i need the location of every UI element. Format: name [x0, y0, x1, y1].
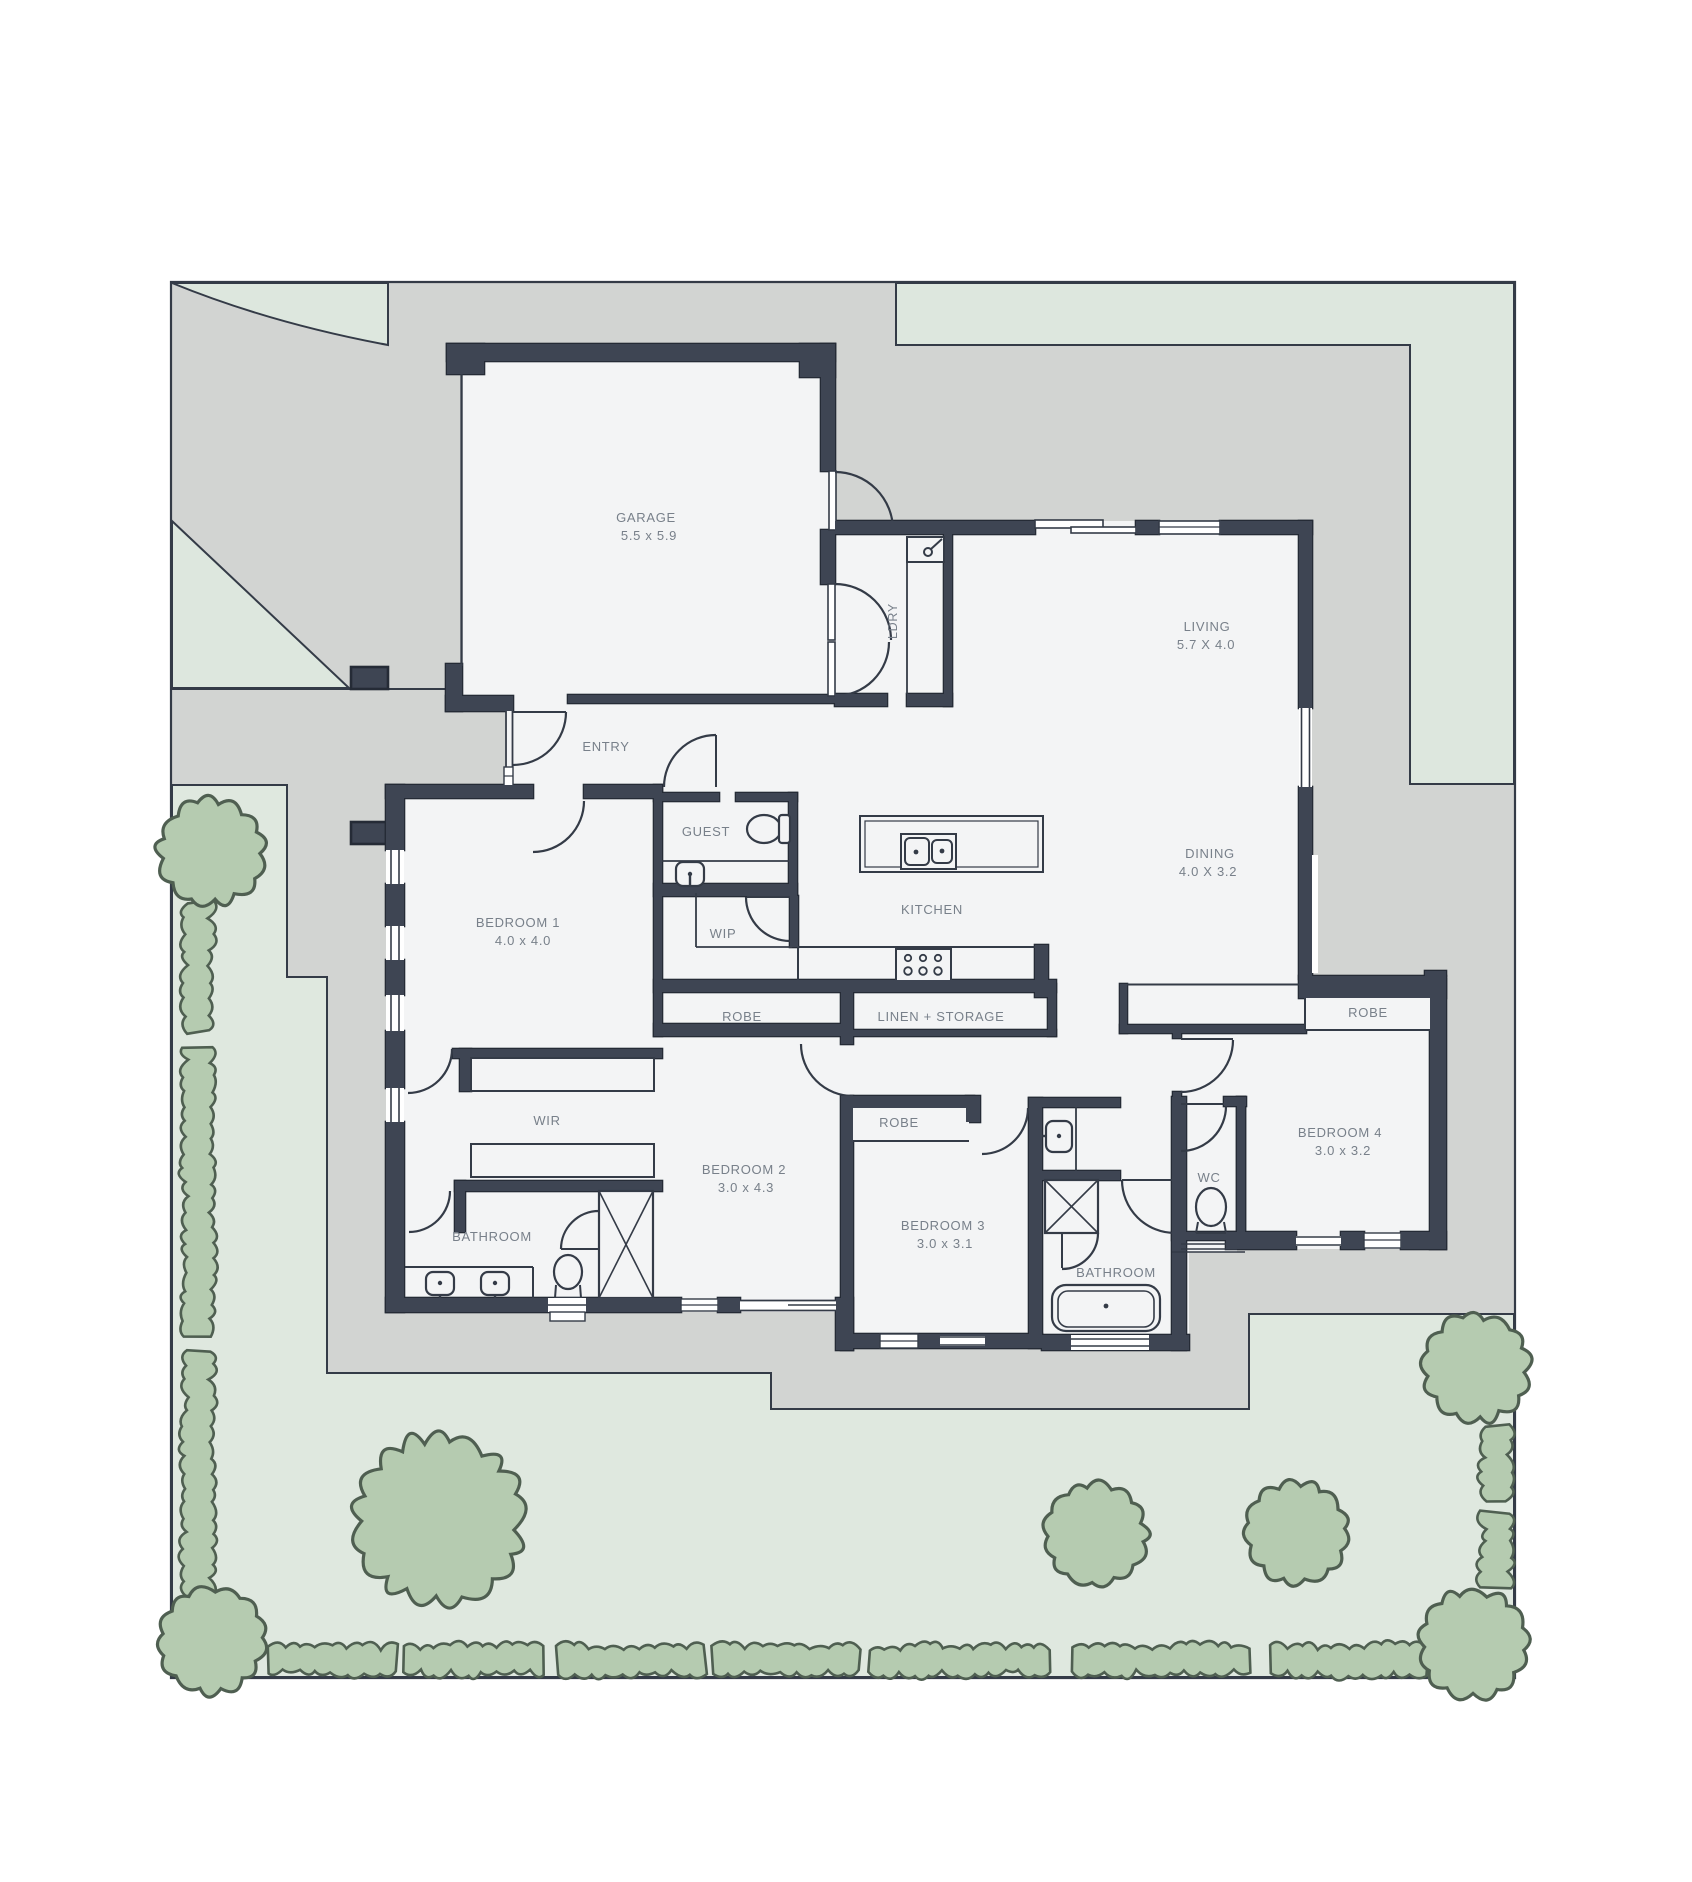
svg-text:GUEST: GUEST [682, 824, 730, 839]
svg-text:4.0 X 3.2: 4.0 X 3.2 [1179, 864, 1237, 879]
svg-text:BEDROOM 2: BEDROOM 2 [702, 1162, 786, 1177]
svg-text:BEDROOM 4: BEDROOM 4 [1298, 1125, 1382, 1140]
svg-text:BATHROOM: BATHROOM [1076, 1265, 1156, 1280]
svg-text:BATHROOM: BATHROOM [452, 1229, 532, 1244]
svg-text:5.5 x 5.9: 5.5 x 5.9 [621, 528, 677, 543]
svg-text:DINING: DINING [1185, 846, 1235, 861]
svg-text:KITCHEN: KITCHEN [901, 902, 963, 917]
svg-text:LIVING: LIVING [1184, 619, 1231, 634]
svg-text:GARAGE: GARAGE [616, 510, 676, 525]
svg-text:ROBE: ROBE [1348, 1005, 1388, 1020]
svg-text:3.0 x 3.2: 3.0 x 3.2 [1315, 1143, 1371, 1158]
svg-text:ENTRY: ENTRY [582, 739, 629, 754]
svg-text:3.0 x 3.1: 3.0 x 3.1 [917, 1236, 973, 1251]
svg-text:WIP: WIP [710, 926, 737, 941]
svg-text:ROBE: ROBE [722, 1009, 762, 1024]
svg-text:WC: WC [1197, 1170, 1220, 1185]
svg-text:WIR: WIR [533, 1113, 560, 1128]
svg-text:BEDROOM 3: BEDROOM 3 [901, 1218, 985, 1233]
svg-text:LINEN + STORAGE: LINEN + STORAGE [878, 1009, 1005, 1024]
svg-text:5.7 X 4.0: 5.7 X 4.0 [1177, 637, 1235, 652]
svg-text:4.0 x 4.0: 4.0 x 4.0 [495, 933, 551, 948]
svg-text:BEDROOM 1: BEDROOM 1 [476, 915, 560, 930]
svg-text:LDRY: LDRY [886, 603, 900, 639]
svg-text:3.0 x 4.3: 3.0 x 4.3 [718, 1180, 774, 1195]
svg-text:ROBE: ROBE [879, 1115, 919, 1130]
